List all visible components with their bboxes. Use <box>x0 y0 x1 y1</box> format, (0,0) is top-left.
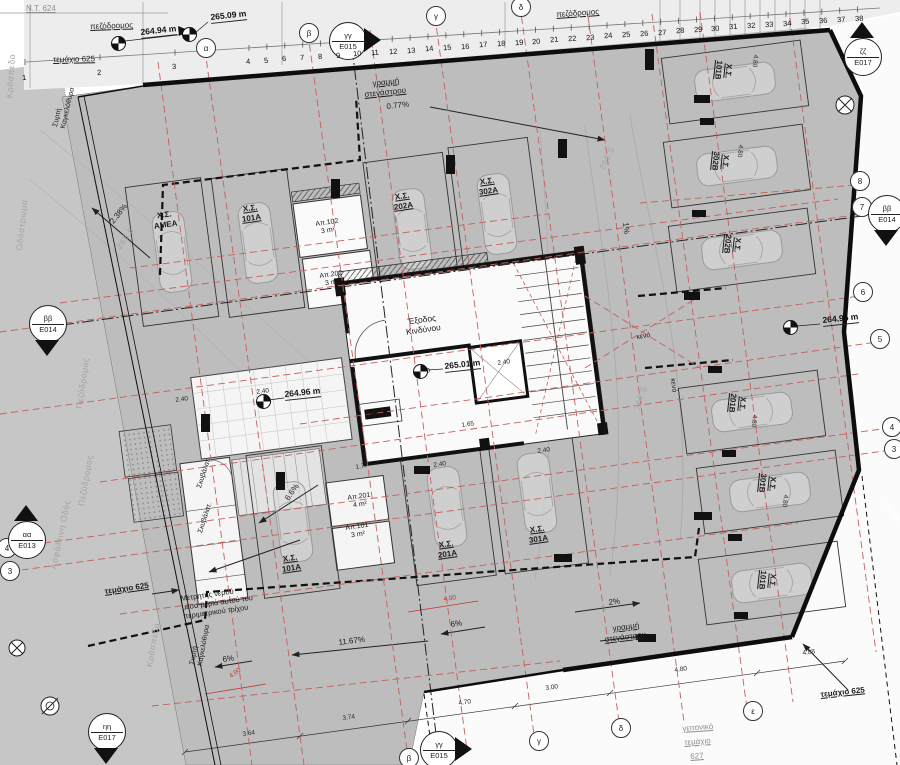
floor-plan-canvas: Ν.Τ. 624πεζόδρομοςτεμάχιο 625πεζόδρομοςτ… <box>0 0 900 765</box>
survey-symbol <box>41 697 59 715</box>
north-symbol <box>9 640 25 656</box>
plan-drawing <box>0 0 900 765</box>
benchmark-symbol <box>836 96 854 114</box>
